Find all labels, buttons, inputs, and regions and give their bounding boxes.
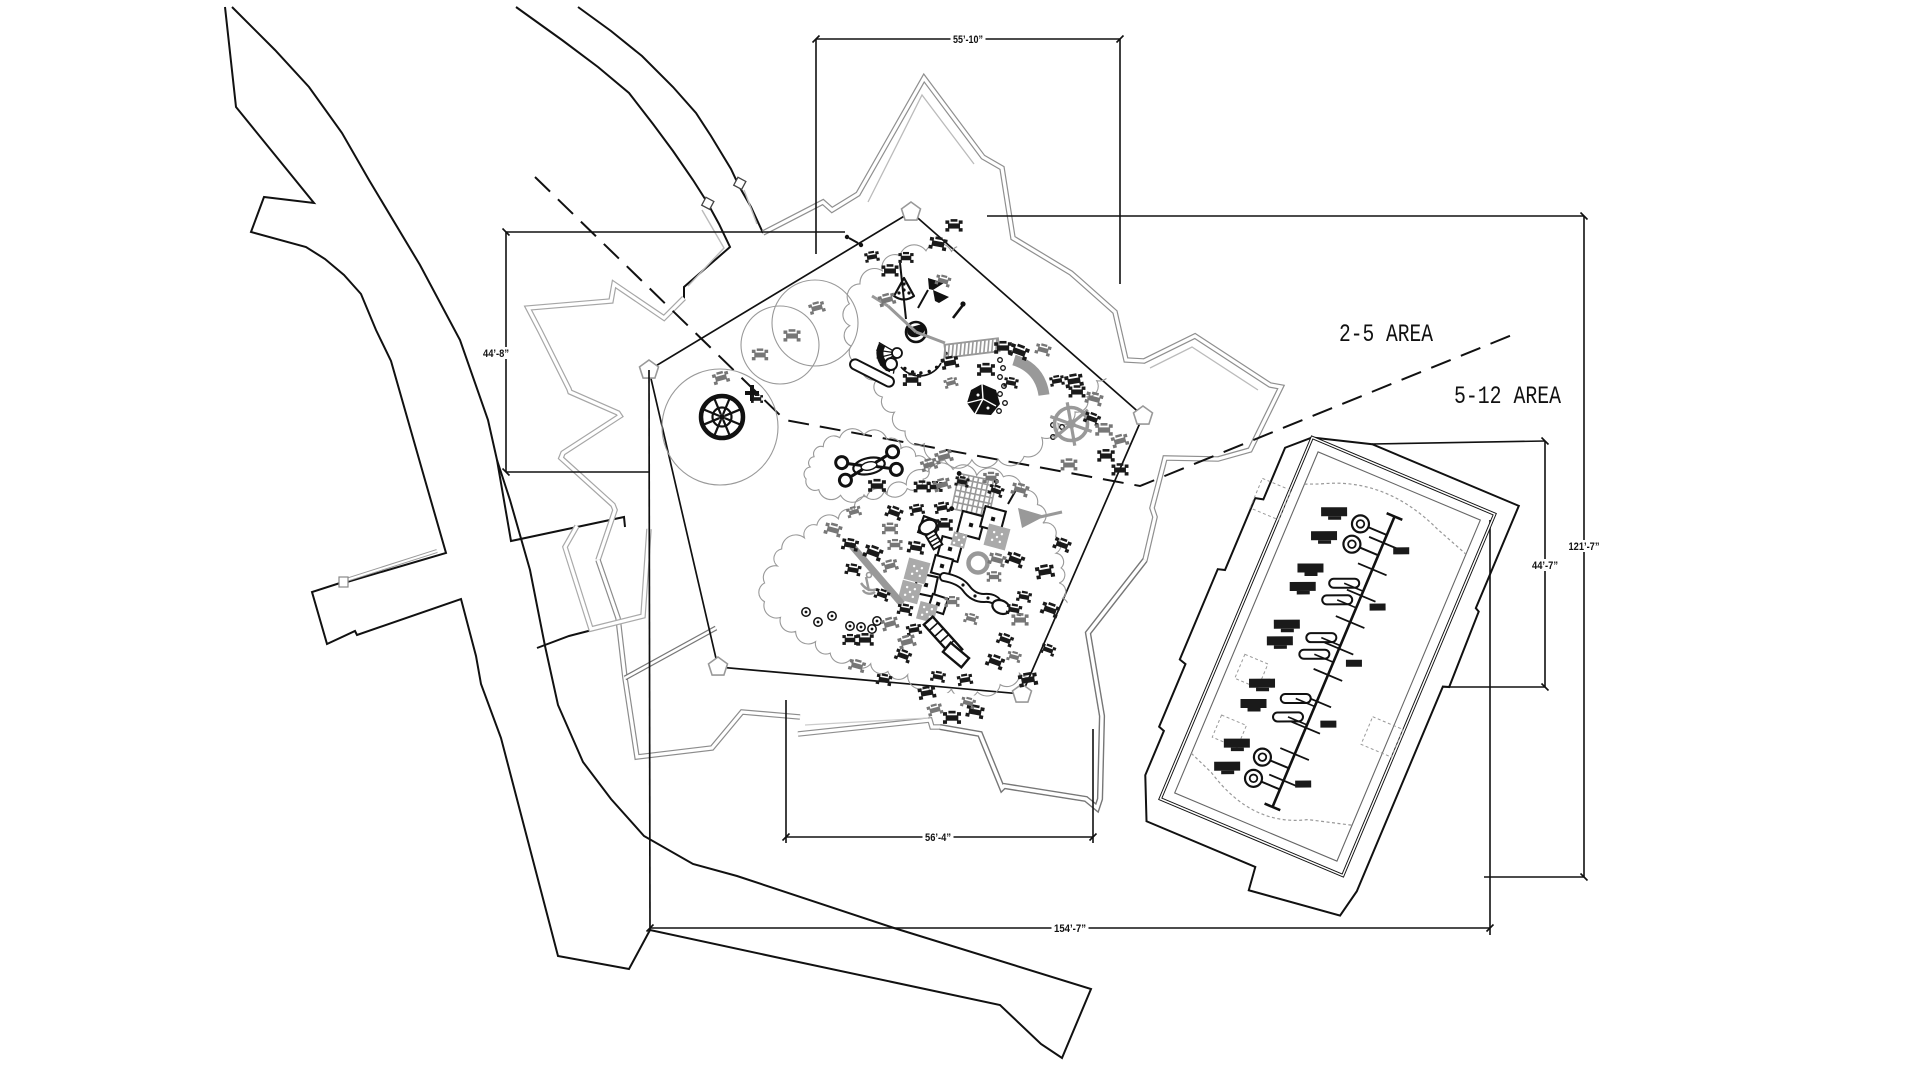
svg-text:121’-7”: 121’-7”: [1569, 541, 1600, 553]
svg-text:56’-4”: 56’-4”: [925, 832, 951, 844]
svg-text:154’-7”: 154’-7”: [1054, 923, 1086, 935]
svg-text:44’-8”: 44’-8”: [483, 348, 509, 360]
svg-text:5-12 AREA: 5-12 AREA: [1454, 382, 1561, 411]
svg-text:55’-10”: 55’-10”: [953, 34, 983, 46]
svg-text:44’-7”: 44’-7”: [1532, 560, 1558, 572]
svg-text:2-5 AREA: 2-5 AREA: [1339, 320, 1433, 349]
